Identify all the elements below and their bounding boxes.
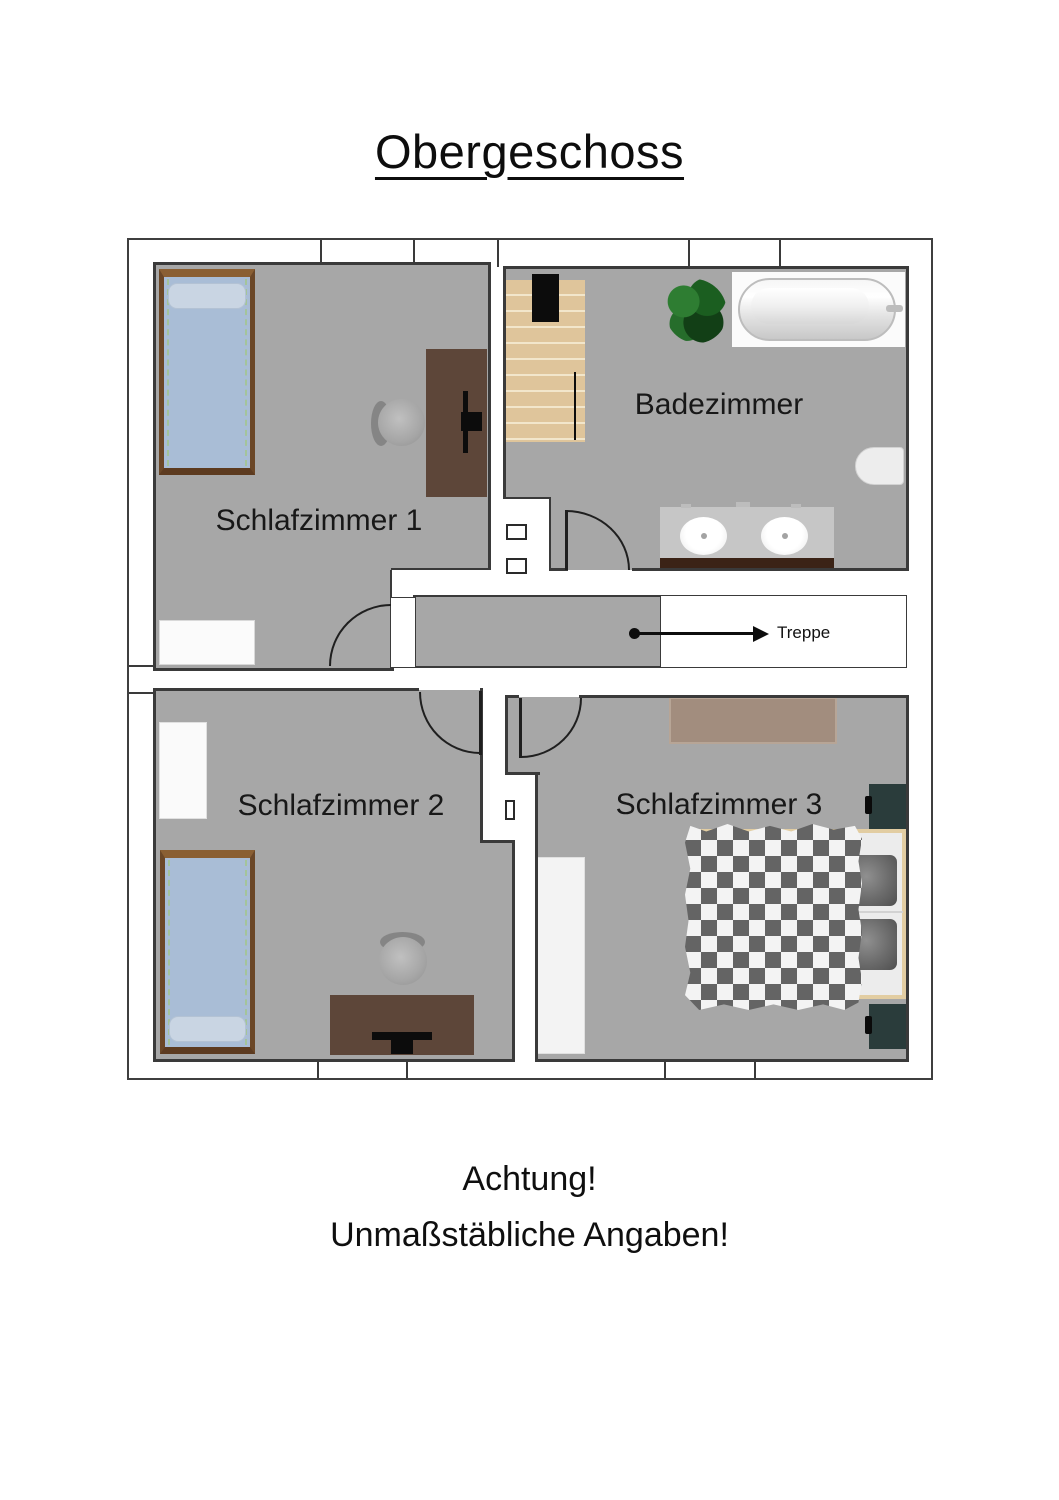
wall — [480, 840, 515, 843]
drain-icon — [782, 533, 788, 539]
window-mark — [754, 1060, 756, 1078]
wall — [153, 668, 394, 671]
hallway-floor — [415, 597, 660, 668]
office-chair — [379, 937, 427, 985]
plant-icon — [665, 279, 727, 343]
stairs-landing — [532, 274, 559, 322]
nightstand-knob-icon — [865, 1016, 872, 1034]
cabinet — [159, 620, 255, 665]
monitor-stand-icon — [391, 1040, 413, 1054]
stairs-arrow-line — [634, 632, 754, 635]
wall-connector — [497, 240, 499, 267]
wardrobe — [535, 857, 585, 1054]
floor-plan: Treppe Schlafzimmer 1 Badezimmer Schlafz… — [127, 238, 933, 1080]
wall-symbol — [505, 800, 515, 820]
stairs-handrail — [574, 372, 576, 440]
warning-line-1: Achtung! — [0, 1160, 1059, 1199]
office-chair — [378, 399, 425, 446]
wall — [413, 666, 662, 668]
nightstand — [869, 1004, 906, 1049]
stairs-label: Treppe — [777, 623, 830, 643]
wall — [535, 772, 538, 1059]
window-mark — [317, 1060, 319, 1078]
wall — [153, 688, 156, 1062]
window-mark — [413, 240, 415, 264]
room-label-schlafzimmer3: Schlafzimmer 3 — [589, 788, 849, 822]
nightstand — [869, 784, 906, 829]
warning-line-2: Unmaßstäbliche Angaben! — [0, 1216, 1059, 1255]
faucet-icon — [736, 502, 750, 507]
wall — [906, 695, 909, 1062]
single-bed — [160, 850, 255, 1054]
wall — [535, 1059, 909, 1062]
doorway — [390, 597, 416, 668]
wall — [503, 266, 506, 499]
wall — [579, 695, 909, 698]
wall — [153, 262, 491, 265]
floor-plan-page: Obergeschoss — [0, 0, 1059, 1500]
stairs-arrow-head-icon — [753, 626, 769, 642]
wall — [632, 568, 909, 571]
room-label-badezimmer: Badezimmer — [629, 388, 809, 422]
wardrobe — [159, 722, 207, 819]
toilet — [855, 447, 904, 485]
wall — [488, 262, 491, 570]
single-bed — [159, 269, 255, 475]
dresser — [669, 697, 837, 744]
wall-connector — [129, 692, 155, 694]
faucet-icon — [681, 504, 691, 508]
window-mark — [320, 240, 322, 264]
faucet-icon — [791, 504, 801, 508]
bathtub-faucet-icon — [886, 305, 903, 312]
bathtub-inner — [751, 288, 869, 324]
wall-symbol — [506, 558, 527, 574]
room-label-schlafzimmer1: Schlafzimmer 1 — [189, 504, 449, 538]
wall-symbol — [506, 524, 527, 540]
window-mark — [664, 1060, 666, 1078]
pillow — [169, 1016, 246, 1042]
wall — [503, 266, 909, 269]
window-mark — [406, 1060, 408, 1078]
window-mark — [779, 240, 781, 267]
wall — [390, 570, 392, 599]
wall — [413, 595, 662, 597]
window-mark — [688, 240, 690, 267]
page-title: Obergeschoss — [0, 124, 1059, 179]
monitor-stand-icon — [461, 412, 482, 431]
keyboard-icon — [372, 1032, 432, 1040]
pillow — [168, 283, 246, 309]
wall — [153, 1059, 515, 1062]
wall — [505, 695, 508, 775]
wall-connector — [129, 665, 155, 667]
drain-icon — [701, 533, 707, 539]
wall — [512, 840, 515, 1062]
wall — [153, 688, 419, 691]
wall — [153, 262, 156, 671]
room-label-schlafzimmer2: Schlafzimmer 2 — [211, 789, 471, 823]
checkered-duvet — [685, 824, 862, 1010]
nightstand-knob-icon — [865, 796, 872, 814]
wall — [503, 497, 551, 499]
wall — [906, 266, 909, 571]
wall — [391, 568, 491, 570]
wall — [549, 497, 551, 570]
